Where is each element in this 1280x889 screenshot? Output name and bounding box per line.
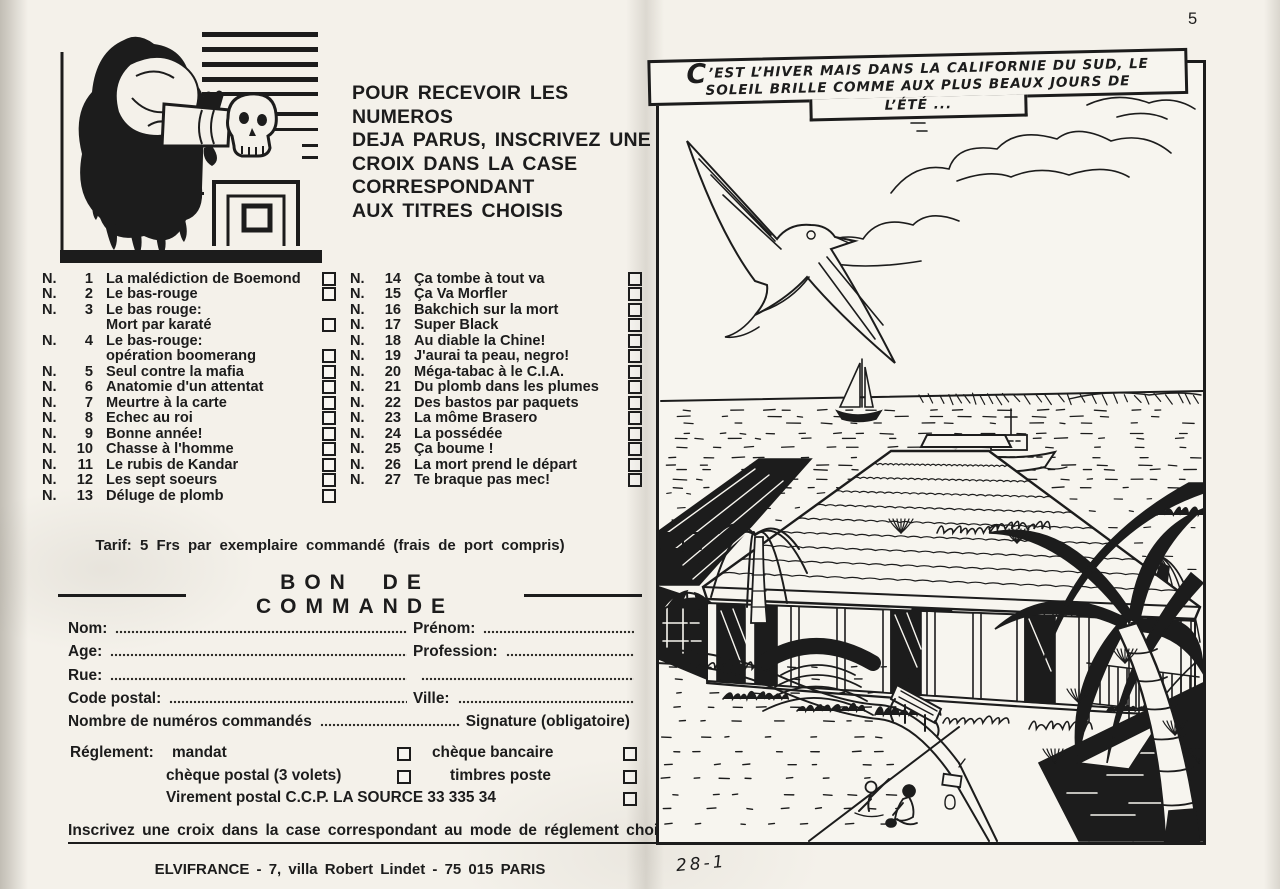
catalog-number-prefix: N. (350, 472, 375, 488)
catalog-number: 9 (67, 426, 93, 442)
sailboat-illustration (837, 359, 881, 422)
catalog-number: 10 (67, 441, 93, 457)
form-label: Ville: (413, 690, 450, 708)
dotted-fill-field[interactable] (506, 653, 634, 657)
payment-option-label: mandat (172, 744, 227, 762)
catalog-number: 18 (375, 333, 401, 349)
catalog-title: Bakchich sur la mort (414, 302, 628, 318)
form-label: Age: (68, 643, 102, 661)
dotted-fill-field[interactable] (320, 723, 460, 727)
dotted-fill-field[interactable] (421, 677, 634, 681)
form-row-right: Ville: (413, 690, 640, 708)
form-row-left: Code postal: (68, 690, 413, 708)
form-label: Nombre de numéros commandés (68, 713, 312, 731)
catalog-title: opération boomerang (106, 348, 322, 364)
catalog-number-prefix: N. (42, 271, 67, 287)
form-label: Code postal: (68, 690, 161, 708)
catalog-title: Chasse à l'homme (106, 441, 322, 457)
ordering-instructions: POUR RECEVOIR LES NUMEROSDEJA PARUS, INS… (352, 82, 654, 223)
catalog-title: Le bas-rouge: (106, 333, 322, 349)
form-row-right (413, 677, 640, 685)
catalog-row: N.24La possédée (350, 426, 642, 442)
catalog-number: 13 (67, 488, 93, 504)
man-figure (855, 779, 889, 817)
catalog-row: N.17Super Black (350, 318, 642, 334)
catalog-number-prefix: N. (42, 302, 67, 318)
catalog-row: N.11Le rubis de Kandar (42, 457, 336, 473)
title-rule-left (58, 594, 186, 597)
catalog-title: Méga-tabac à le C.I.A. (414, 364, 628, 380)
catalog-number: 5 (67, 364, 93, 380)
form-label: Nom: (68, 620, 107, 638)
catalog-number-prefix: N. (42, 379, 67, 395)
catalog-number-prefix: N. (42, 286, 67, 302)
catalog-number-prefix: N. (350, 302, 375, 318)
form-row-left: Nom: (68, 620, 413, 638)
payment-row: Virement postal C.C.P. LA SOURCE 33 335 … (70, 789, 648, 812)
catalog-row: N.14Ça tombe à tout va (350, 271, 642, 287)
order-form-title: BON DE COMMANDE (202, 571, 508, 619)
catalog-title: Au diable la Chine! (414, 333, 628, 349)
catalog-number: 4 (67, 333, 93, 349)
order-checkbox[interactable] (628, 303, 642, 317)
catalog-number-prefix: N. (42, 426, 67, 442)
form-row: Nombre de numéros commandésSignature (ob… (68, 708, 640, 731)
bottle-icon (945, 795, 955, 809)
payment-checkbox[interactable] (397, 747, 411, 761)
catalog-row: Mort par karaté (42, 318, 336, 334)
order-checkbox[interactable] (322, 396, 336, 410)
catalog-number-prefix: N. (350, 333, 375, 349)
panel-code: 28-1 (675, 852, 727, 876)
form-label: Signature (obligatoire) (466, 713, 630, 731)
skull-logo-illustration (52, 6, 332, 268)
payment-option-label: Virement postal C.C.P. LA SOURCE 33 335 … (166, 789, 496, 807)
order-checkbox[interactable] (628, 473, 642, 487)
catalog-row: N.21Du plomb dans les plumes (350, 380, 642, 396)
villa-illustration (659, 435, 1200, 729)
skull-icon (228, 94, 277, 156)
catalog-number: 24 (375, 426, 401, 442)
catalog-number-prefix: N. (42, 472, 67, 488)
catalog-number: 19 (375, 348, 401, 364)
catalog-row: N.25Ça boume ! (350, 442, 642, 458)
catalog-row: N.3Le bas rouge: (42, 302, 336, 318)
form-row: Rue: (68, 661, 640, 684)
catalog-title: Déluge de plomb (106, 488, 322, 504)
catalog-number-prefix: N. (42, 364, 67, 380)
catalog-title: Seul contre la mafia (106, 364, 322, 380)
catalog-row: N.22Des bastos par paquets (350, 395, 642, 411)
catalog-number-prefix: N. (350, 286, 375, 302)
form-row-left: Age: (68, 643, 413, 661)
form-row: Age:Profession: (68, 638, 640, 661)
payment-checkbox[interactable] (397, 770, 411, 784)
order-checkbox[interactable] (322, 473, 336, 487)
catalog-title: Anatomie d'un attentat (106, 379, 322, 395)
order-checkbox[interactable] (322, 272, 336, 286)
catalog-number: 2 (67, 286, 93, 302)
order-checkbox[interactable] (628, 349, 642, 363)
catalog-number: 8 (67, 410, 93, 426)
catalog-column-1: N.1La malédiction de BoemondN.2Le bas-ro… (42, 271, 336, 504)
catalog-row: N.5Seul contre la mafia (42, 364, 336, 380)
instructions-line: CORRESPONDANT (352, 176, 654, 200)
catalog-number-prefix: N. (350, 457, 375, 473)
catalog-number: 3 (67, 302, 93, 318)
woman-figure (886, 785, 917, 827)
title-rule-right (524, 594, 642, 597)
form-label: Profession: (413, 643, 498, 661)
payment-row: chèque postal (3 volets)timbres poste (70, 767, 648, 790)
catalog-title: Ça boume ! (414, 441, 628, 457)
catalog-number: 1 (67, 271, 93, 287)
order-form-title-row: BON DE COMMANDE (58, 571, 642, 619)
catalog-number: 6 (67, 379, 93, 395)
catalog-number: 20 (375, 364, 401, 380)
dotted-fill-field[interactable] (458, 700, 635, 704)
order-checkbox[interactable] (322, 287, 336, 301)
payment-checkbox[interactable] (623, 770, 637, 784)
catalog-title: Le bas rouge: (106, 302, 322, 318)
form-row-left: Rue: (68, 667, 413, 685)
seagull-illustration (687, 141, 895, 363)
catalog-number: 14 (375, 271, 401, 287)
catalog-row: N.15Ça Va Morfler (350, 287, 642, 303)
catalog-title: La possédée (414, 426, 628, 442)
order-checkbox[interactable] (628, 442, 642, 456)
dotted-fill-field[interactable] (169, 700, 407, 704)
instructions-line: POUR RECEVOIR LES NUMEROS (352, 82, 654, 129)
catalog-number-prefix: N. (42, 488, 67, 504)
order-checkbox[interactable] (322, 442, 336, 456)
catalog-number: 23 (375, 410, 401, 426)
narration-caption: C’EST L’HIVER MAIS DANS LA CALIFORNIE DU… (647, 48, 1188, 125)
catalog-column-2: N.14Ça tombe à tout vaN.15Ça Va MorflerN… (350, 271, 642, 488)
catalog-title: Les sept soeurs (106, 472, 322, 488)
dotted-fill-field[interactable] (115, 630, 407, 634)
order-checkbox[interactable] (322, 458, 336, 472)
form-row: Code postal:Ville: (68, 685, 640, 708)
catalog-number: 27 (375, 472, 401, 488)
caption-drop-cap: C (686, 59, 707, 90)
catalog-title: Mort par karaté (106, 317, 322, 333)
catalog-title: Ça Va Morfler (414, 286, 628, 302)
catalog-title: La malédiction de Boemond (106, 271, 322, 287)
catalog-row: N.16Bakchich sur la mort (350, 302, 642, 318)
catalog-number-prefix: N. (42, 441, 67, 457)
instructions-line: CROIX DANS LA CASE (352, 153, 654, 177)
catalog-number: 21 (375, 379, 401, 395)
dotted-fill-field[interactable] (110, 677, 407, 681)
order-checkbox[interactable] (322, 411, 336, 425)
catalog-number-prefix: N. (42, 395, 67, 411)
catalog-row: N.20Méga-tabac à le C.I.A. (350, 364, 642, 380)
catalog-title: Des bastos par paquets (414, 395, 628, 411)
catalog-number: 25 (375, 441, 401, 457)
order-checkbox[interactable] (628, 458, 642, 472)
catalog-title: Le rubis de Kandar (106, 457, 322, 473)
catalog-number-prefix: N. (42, 410, 67, 426)
catalog-number: 7 (67, 395, 93, 411)
payment-option-label: chèque bancaire (432, 744, 553, 762)
catalog-number: 17 (375, 317, 401, 333)
logo-bottom-bar (60, 250, 322, 263)
payment-checkbox[interactable] (623, 792, 637, 806)
order-checkbox[interactable] (628, 365, 642, 379)
catalog-title: Echec au roi (106, 410, 322, 426)
catalog-title: Bonne année! (106, 426, 322, 442)
form-row-right: Prénom: (413, 620, 640, 638)
catalog-title: Super Black (414, 317, 628, 333)
catalog-number: 12 (67, 472, 93, 488)
payment-row: Réglement:mandatchèque bancaire (70, 744, 648, 767)
payment-section: Réglement:mandatchèque bancairechèque po… (70, 744, 648, 812)
catalog-number-prefix: N. (42, 333, 67, 349)
page-number: 5 (1188, 10, 1197, 29)
form-label: Prénom: (413, 620, 475, 638)
order-checkbox[interactable] (322, 349, 336, 363)
order-checkbox[interactable] (628, 318, 642, 332)
catalog-row: N.19J'aurai ta peau, negro! (350, 349, 642, 365)
catalog-number-prefix: N. (350, 410, 375, 426)
catalog-number-prefix: N. (350, 379, 375, 395)
order-checkbox[interactable] (322, 427, 336, 441)
order-checkbox[interactable] (322, 365, 336, 379)
catalog-number-prefix: N. (350, 441, 375, 457)
nested-squares-motif (198, 182, 298, 246)
instructions-line: DEJA PARUS, INSCRIVEZ UNE (352, 129, 654, 153)
payment-option-label: timbres poste (450, 767, 551, 785)
order-checkbox[interactable] (628, 334, 642, 348)
catalog-title: Ça tombe à tout va (414, 271, 628, 287)
order-checkbox[interactable] (322, 318, 336, 332)
form-label: Rue: (68, 667, 102, 685)
catalog-row: N.12Les sept soeurs (42, 473, 336, 489)
payment-section-label: Réglement: (70, 744, 154, 762)
catalog-number: 26 (375, 457, 401, 473)
catalog-row: N.9Bonne année! (42, 426, 336, 442)
catalog-row: N.7Meurtre à la carte (42, 395, 336, 411)
horizon (661, 391, 1203, 405)
comic-scene-illustration (659, 63, 1203, 842)
catalog-number-prefix: N. (350, 271, 375, 287)
catalog-title: La mort prend le départ (414, 457, 628, 473)
catalog-number-prefix: N. (350, 426, 375, 442)
catalog-row: N.10Chasse à l'homme (42, 442, 336, 458)
radio-icon (942, 759, 965, 787)
catalog-number-prefix: N. (350, 317, 375, 333)
catalog-row: N.27Te braque pas mec! (350, 473, 642, 489)
catalog-row: N.18Au diable la Chine! (350, 333, 642, 349)
catalog-row: N.8Echec au roi (42, 411, 336, 427)
payment-note: Inscrivez une croix dans la case corresp… (68, 822, 676, 844)
order-checkbox[interactable] (628, 272, 642, 286)
catalog-title: Te braque pas mec! (414, 472, 628, 488)
catalog-number: 16 (375, 302, 401, 318)
form-row-right: Profession: (413, 643, 640, 661)
catalog-row: N.23La môme Brasero (350, 411, 642, 427)
catalog-row: N.1La malédiction de Boemond (42, 271, 336, 287)
catalog-number: 22 (375, 395, 401, 411)
catalog-title: La môme Brasero (414, 410, 628, 426)
catalog-number-prefix: N. (42, 457, 67, 473)
order-checkbox[interactable] (628, 380, 642, 394)
catalog-row: N.6Anatomie d'un attentat (42, 380, 336, 396)
catalog-row: N.26La mort prend le départ (350, 457, 642, 473)
tarif-line: Tarif: 5 Frs par exemplaire commandé (fr… (66, 537, 594, 554)
catalog-title: Le bas-rouge (106, 286, 322, 302)
catalog-number: 11 (67, 457, 93, 473)
order-form: Nom:Prénom:Age:Profession:Rue:Code posta… (68, 615, 640, 731)
dotted-fill-field[interactable] (483, 630, 634, 634)
scanned-page-background: POUR RECEVOIR LES NUMEROSDEJA PARUS, INS… (0, 0, 1280, 889)
form-row: Nom:Prénom: (68, 615, 640, 638)
payment-checkbox[interactable] (623, 747, 637, 761)
clouds (807, 97, 1195, 266)
publisher-line: ELVIFRANCE - 7, villa Robert Lindet - 75… (140, 861, 560, 878)
catalog-title: Meurtre à la carte (106, 395, 322, 411)
order-checkbox[interactable] (628, 396, 642, 410)
catalog-number: 15 (375, 286, 401, 302)
payment-option-label: chèque postal (3 volets) (166, 767, 341, 785)
catalog-title: J'aurai ta peau, negro! (414, 348, 628, 364)
order-checkbox[interactable] (628, 411, 642, 425)
catalog-number-prefix: N. (350, 348, 375, 364)
catalog-row: N.4Le bas-rouge: (42, 333, 336, 349)
order-checkbox[interactable] (628, 427, 642, 441)
order-checkbox[interactable] (628, 287, 642, 301)
dotted-fill-field[interactable] (110, 653, 407, 657)
comic-panel (656, 60, 1206, 845)
catalog-row: N.2Le bas-rouge (42, 287, 336, 303)
catalog-title: Du plomb dans les plumes (414, 379, 628, 395)
order-checkbox[interactable] (322, 380, 336, 394)
catalog-number-prefix: N. (350, 364, 375, 380)
catalog-row: N.13Déluge de plomb (42, 488, 336, 504)
skull-melting-logo (52, 6, 332, 268)
catalog-row: opération boomerang (42, 349, 336, 365)
instructions-line: AUX TITRES CHOISIS (352, 200, 654, 224)
catalog-number-prefix: N. (350, 395, 375, 411)
order-checkbox[interactable] (322, 489, 336, 503)
